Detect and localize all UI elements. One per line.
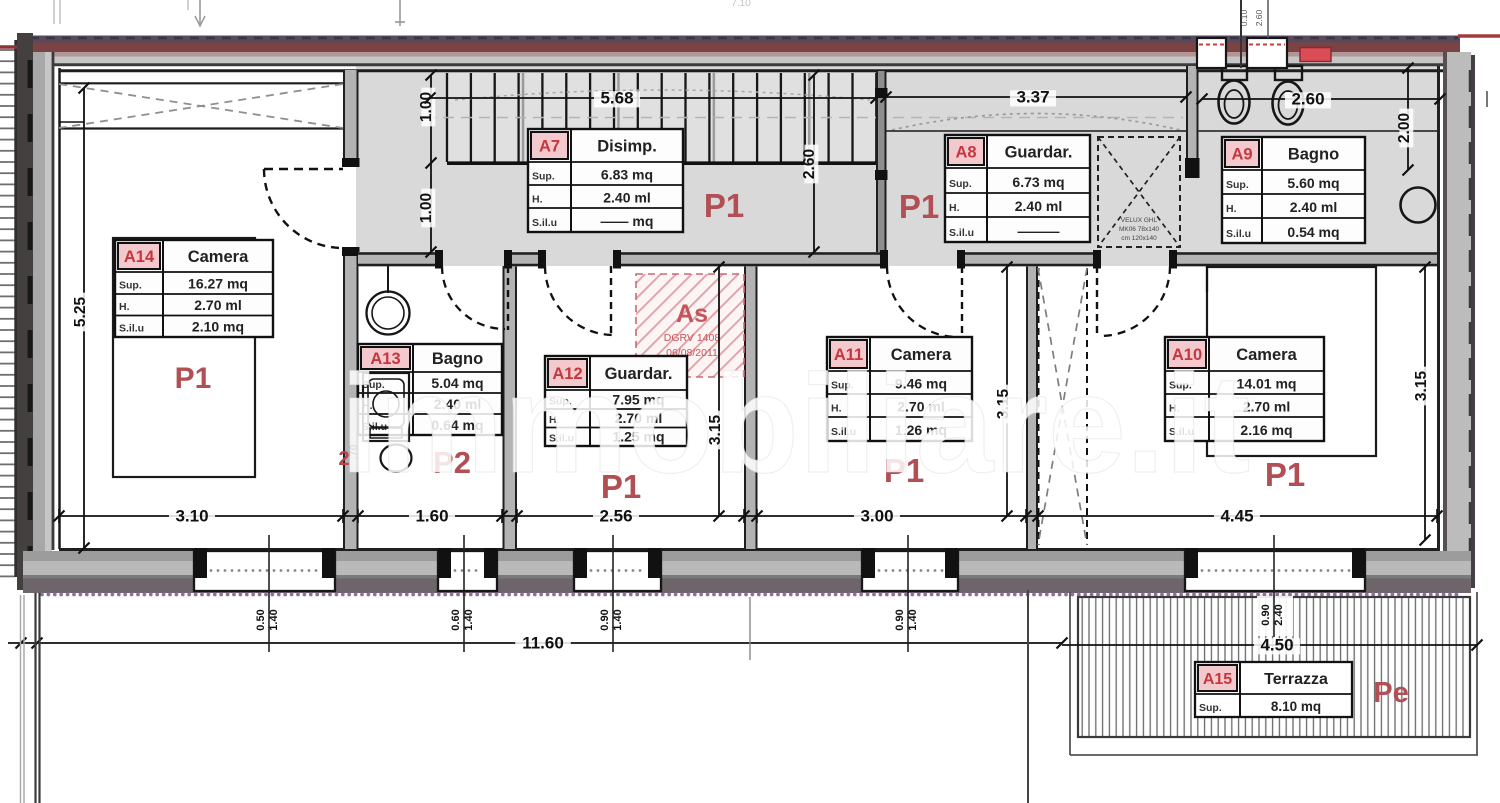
svg-text:8.10 mq: 8.10 mq xyxy=(1271,699,1321,714)
svg-text:3.10: 3.10 xyxy=(175,507,208,526)
svg-text:S.il.u: S.il.u xyxy=(1226,228,1251,240)
svg-text:2.70 ml: 2.70 ml xyxy=(194,297,241,313)
svg-text:3.00: 3.00 xyxy=(860,507,893,526)
svg-text:cm 120x140: cm 120x140 xyxy=(1121,235,1157,242)
svg-text:1.00: 1.00 xyxy=(418,193,435,223)
svg-text:2.40 ml: 2.40 ml xyxy=(1015,198,1062,214)
svg-text:P1: P1 xyxy=(704,187,744,224)
svg-text:P1: P1 xyxy=(1265,456,1305,493)
svg-text:Terrazza: Terrazza xyxy=(1264,671,1328,688)
svg-text:2.60: 2.60 xyxy=(1254,9,1264,26)
svg-text:2.40: 2.40 xyxy=(1273,604,1285,625)
svg-text:S.il.u: S.il.u xyxy=(532,217,557,229)
svg-text:5.60 mq: 5.60 mq xyxy=(1287,175,1339,191)
svg-text:2.56: 2.56 xyxy=(599,507,632,526)
svg-text:0.50: 0.50 xyxy=(255,609,267,630)
svg-text:Sup.: Sup. xyxy=(532,170,555,182)
svg-text:Disimp.: Disimp. xyxy=(597,138,657,156)
svg-text:6.73 mq: 6.73 mq xyxy=(1012,174,1064,190)
svg-text:H.: H. xyxy=(1226,203,1237,215)
svg-text:S.il.u: S.il.u xyxy=(949,227,974,239)
svg-text:Pe: Pe xyxy=(1373,677,1408,709)
svg-text:—— mq: —— mq xyxy=(601,213,654,229)
svg-text:Sup.: Sup. xyxy=(1226,179,1249,191)
svg-text:1.40: 1.40 xyxy=(612,609,624,630)
svg-text:7.10: 7.10 xyxy=(731,0,751,9)
svg-text:2.40 ml: 2.40 ml xyxy=(1290,199,1337,215)
svg-text:H.: H. xyxy=(532,193,543,205)
svg-text:3.15: 3.15 xyxy=(1413,371,1430,402)
svg-text:Sup.: Sup. xyxy=(119,280,142,292)
svg-text:A15: A15 xyxy=(1203,671,1232,688)
svg-text:4.45: 4.45 xyxy=(1220,507,1253,526)
svg-text:2.00: 2.00 xyxy=(1396,113,1413,143)
svg-text:H.: H. xyxy=(119,301,130,313)
svg-text:2.10 mq: 2.10 mq xyxy=(192,319,244,335)
svg-text:2.40 ml: 2.40 ml xyxy=(603,189,650,205)
svg-text:Sup.: Sup. xyxy=(949,178,972,190)
svg-text:P1: P1 xyxy=(899,188,939,225)
svg-text:Bagno: Bagno xyxy=(1288,146,1339,164)
svg-text:16.27 mq: 16.27 mq xyxy=(188,276,248,292)
svg-text:0.90: 0.90 xyxy=(1260,604,1272,625)
svg-text:S.il.u: S.il.u xyxy=(119,323,144,335)
svg-text:VELUX GHL: VELUX GHL xyxy=(1121,217,1158,224)
svg-text:2.60: 2.60 xyxy=(1291,90,1324,109)
svg-text:0.60: 0.60 xyxy=(450,609,462,630)
svg-text:P1: P1 xyxy=(175,362,212,395)
svg-text:A9: A9 xyxy=(1231,146,1252,164)
svg-text:H.: H. xyxy=(949,202,960,214)
svg-text:As: As xyxy=(676,300,708,328)
svg-text:DGRV 1408: DGRV 1408 xyxy=(664,332,721,344)
svg-text:Guardar.: Guardar. xyxy=(1005,144,1073,162)
svg-text:———: ——— xyxy=(1018,223,1060,239)
svg-text:0.54 mq: 0.54 mq xyxy=(1287,224,1339,240)
svg-text:0.90: 0.90 xyxy=(599,609,611,630)
svg-text:1.40: 1.40 xyxy=(907,609,919,630)
svg-text:6.83 mq: 6.83 mq xyxy=(601,166,653,182)
svg-text:11.60: 11.60 xyxy=(522,634,564,653)
svg-text:MK06 78x140: MK06 78x140 xyxy=(1119,226,1159,233)
svg-text:1.60: 1.60 xyxy=(415,507,448,526)
svg-text:5.25: 5.25 xyxy=(72,297,89,328)
svg-text:Camera: Camera xyxy=(188,248,249,266)
svg-text:0.90: 0.90 xyxy=(894,609,906,630)
svg-text:5.68: 5.68 xyxy=(600,89,633,108)
svg-text:immobiliare.it: immobiliare.it xyxy=(340,345,1250,502)
svg-text:4.50: 4.50 xyxy=(1260,636,1293,655)
svg-text:2.60: 2.60 xyxy=(801,149,818,179)
svg-text:Sup.: Sup. xyxy=(1199,702,1222,714)
svg-text:3.37: 3.37 xyxy=(1016,88,1049,107)
svg-text:1.40: 1.40 xyxy=(463,609,475,630)
svg-text:A7: A7 xyxy=(539,138,560,156)
svg-text:A8: A8 xyxy=(955,144,976,162)
svg-text:0.10: 0.10 xyxy=(1239,9,1249,26)
svg-text:1.40: 1.40 xyxy=(268,609,280,630)
svg-text:A14: A14 xyxy=(124,248,155,266)
